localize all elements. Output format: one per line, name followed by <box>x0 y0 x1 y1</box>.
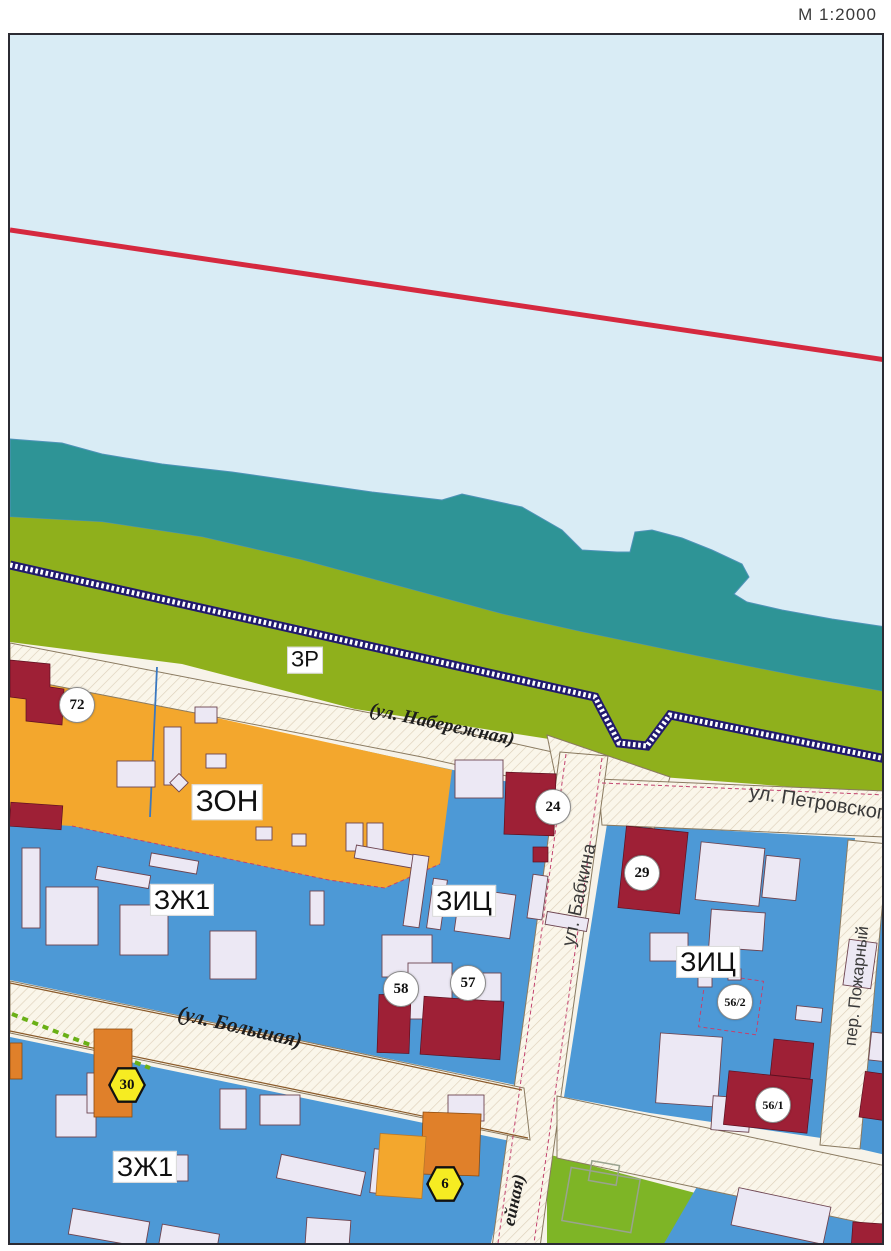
circle-marker-58: 58 <box>383 971 419 1007</box>
zone-label-zic-east: ЗИЦ <box>676 946 740 978</box>
scale-label: М 1:2000 <box>798 5 877 25</box>
circle-marker-29: 29 <box>624 855 660 891</box>
hexagon-marker-30: 30 <box>108 1066 146 1104</box>
zone-label-zh1-south: ЗЖ1 <box>113 1151 177 1183</box>
street-label-unnamed-south: ейная) <box>498 1172 529 1227</box>
street-label-babkina: ул. Бабкина <box>558 842 601 949</box>
zone-label-zr: ЗР <box>287 647 323 674</box>
street-label-bolshaya: (ул. Большая) <box>176 1001 305 1054</box>
zone-label-zon: ЗОН <box>192 784 263 820</box>
circle-marker-57: 57 <box>450 965 486 1001</box>
street-label-naberezhnaya: (ул. Набережная) <box>368 699 517 751</box>
hexagon-marker-label: 6 <box>429 1168 462 1201</box>
zone-label-zh1-north: ЗЖ1 <box>150 884 214 916</box>
map-page: М 1:2000 <box>0 0 891 1251</box>
map-frame: ЗРЗОНЗЖ1ЗИЦЗИЦЗЖ1(ул. Набережная)ул. Пет… <box>8 33 884 1245</box>
street-label-pozharny: пер. Пожарный <box>841 925 873 1047</box>
circle-marker-24: 24 <box>535 789 571 825</box>
circle-marker-56/2: 56/2 <box>717 984 753 1020</box>
circle-marker-56/1: 56/1 <box>755 1087 791 1123</box>
zone-label-zic-west: ЗИЦ <box>432 885 496 917</box>
hexagon-marker-label: 30 <box>111 1069 144 1102</box>
hexagon-marker-6: 6 <box>426 1165 464 1203</box>
street-label-petrovskogo: ул. Петровского <box>748 781 884 827</box>
circle-marker-72: 72 <box>59 687 95 723</box>
label-layer: ЗРЗОНЗЖ1ЗИЦЗИЦЗЖ1(ул. Набережная)ул. Пет… <box>10 35 884 1245</box>
